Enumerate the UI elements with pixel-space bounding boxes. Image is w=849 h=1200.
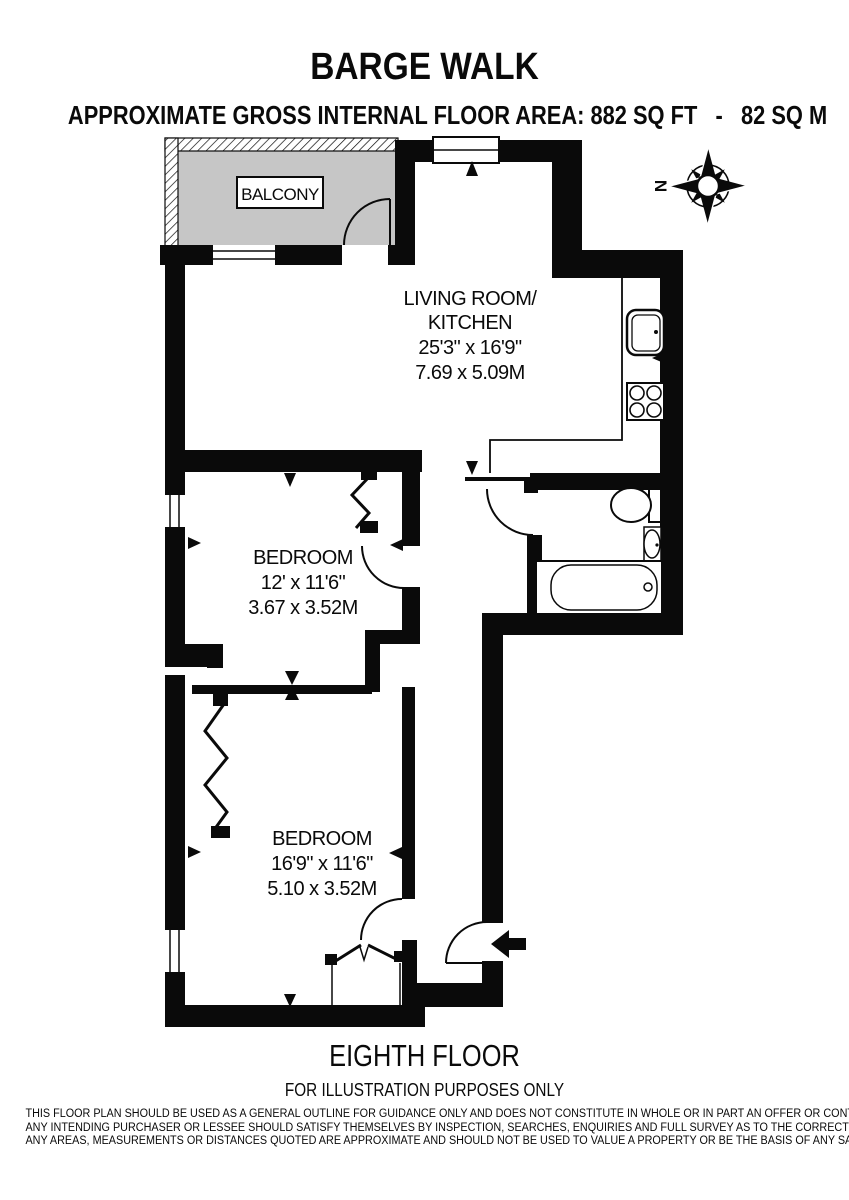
toilet-icon: [611, 488, 661, 522]
disclaimer-line-3: ANY AREAS, MEASUREMENTS OR DISTANCES QUO…: [25, 1135, 823, 1149]
bedroom2-door-arc: [361, 899, 402, 940]
sink-icon: [627, 310, 664, 355]
balcony-hatch-top: [165, 138, 398, 151]
bathtub-icon: [536, 561, 662, 614]
hob-icon: [627, 383, 664, 420]
tick-bedroom1-right: [390, 539, 403, 551]
basin-icon: [644, 527, 661, 561]
compass-icon: N: [651, 148, 746, 224]
bedroom1-door-arc: [362, 546, 404, 588]
bedroom2-wardrobe: [205, 693, 230, 838]
entry-door-arc: [446, 922, 487, 963]
disclaimer-line-1: THIS FLOOR PLAN SHOULD BE USED AS A GENE…: [25, 1108, 823, 1122]
compass-north-label: N: [651, 180, 670, 192]
window-top: [433, 137, 499, 163]
window-bedroom2: [165, 930, 185, 972]
living-room-dims-imperial: 25'3" x 16'9": [418, 337, 522, 359]
floor-plan-page: BARGE WALK APPROXIMATE GROSS INTERNAL FL…: [0, 0, 849, 1200]
balcony-label: BALCONY: [241, 185, 319, 204]
bedroom2-dims-imperial: 16'9" x 11'6": [271, 853, 373, 875]
illustration-note: FOR ILLUSTRATION PURPOSES ONLY: [64, 1080, 786, 1101]
tick-bedroom1-left: [188, 537, 201, 549]
window-bedroom1: [165, 495, 185, 527]
disclaimer-line-2: ANY INTENDING PURCHASER OR LESSEE SHOULD…: [25, 1122, 823, 1136]
bedroom2-label: BEDROOM: [272, 828, 372, 850]
bedroom1-dims-imperial: 12' x 11'6": [261, 572, 346, 594]
balcony-hatch-left: [165, 138, 178, 246]
tick-hall-opening: [466, 461, 478, 475]
living-room-label-2: KITCHEN: [428, 312, 512, 334]
window-balcony-wall: [213, 246, 275, 264]
living-room-label-1: LIVING ROOM/: [404, 288, 538, 310]
tick-bedroom1-top: [284, 473, 296, 487]
entry-arrow-icon: [491, 930, 526, 958]
bedroom2-dims-metric: 5.10 x 3.52M: [267, 878, 377, 900]
bedroom1-wardrobe: [352, 470, 378, 533]
hall-closet: [325, 945, 407, 1005]
balcony: BALCONY: [165, 138, 398, 246]
bedroom1-label: BEDROOM: [253, 547, 353, 569]
tick-bedroom2-right: [389, 847, 402, 859]
bathroom-door-arc: [487, 489, 533, 535]
bathroom: [536, 488, 662, 614]
living-room-dims-metric: 7.69 x 5.09M: [415, 362, 525, 384]
wall-notch: [165, 667, 207, 675]
disclaimer: THIS FLOOR PLAN SHOULD BE USED AS A GENE…: [25, 1108, 823, 1149]
floor-plan-drawing: BALCONY: [0, 0, 849, 1200]
tick-bedroom2-top-a: [285, 671, 299, 685]
bedroom1-dims-metric: 3.67 x 3.52M: [248, 597, 358, 619]
tick-bedroom2-left: [188, 846, 201, 858]
floor-name: EIGHTH FLOOR: [76, 1038, 772, 1074]
